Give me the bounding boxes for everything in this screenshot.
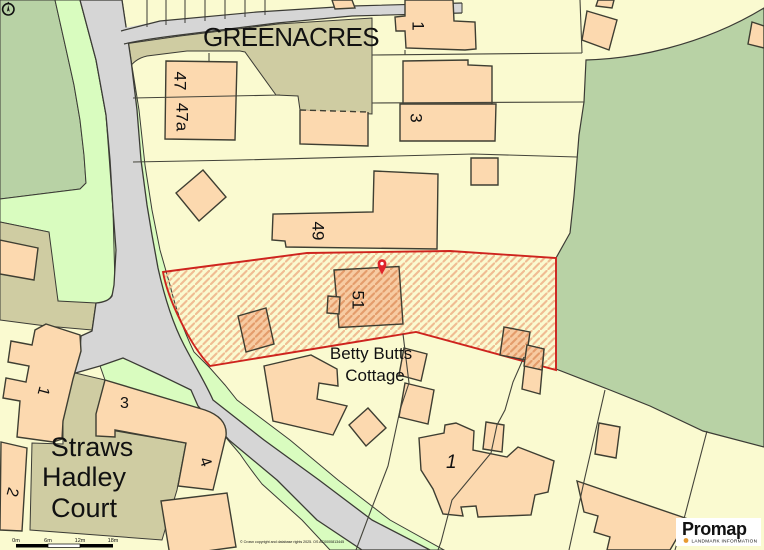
svg-text:LANDMARK INFORMATION: LANDMARK INFORMATION — [692, 539, 758, 544]
svg-text:GREENACRES: GREENACRES — [203, 22, 379, 52]
svg-text:1: 1 — [409, 21, 428, 30]
svg-text:51: 51 — [349, 291, 368, 310]
svg-text:18m: 18m — [108, 538, 119, 544]
svg-text:Hadley: Hadley — [42, 462, 127, 492]
svg-text:0m: 0m — [12, 538, 20, 544]
svg-text:47: 47 — [171, 72, 190, 91]
svg-text:© Crown copyright and database: © Crown copyright and database rights 20… — [240, 540, 344, 544]
svg-text:47a: 47a — [173, 103, 192, 132]
svg-text:Cottage: Cottage — [345, 366, 405, 385]
svg-text:Straws: Straws — [51, 432, 134, 462]
svg-text:3: 3 — [120, 395, 129, 412]
svg-text:Promap: Promap — [682, 519, 747, 539]
svg-text:Betty Butts: Betty Butts — [330, 344, 412, 363]
svg-text:6m: 6m — [44, 538, 52, 544]
svg-text:Court: Court — [51, 493, 118, 523]
svg-text:12m: 12m — [75, 538, 86, 544]
svg-text:49: 49 — [309, 222, 328, 241]
svg-text:1: 1 — [446, 452, 457, 473]
svg-text:3: 3 — [407, 113, 426, 122]
